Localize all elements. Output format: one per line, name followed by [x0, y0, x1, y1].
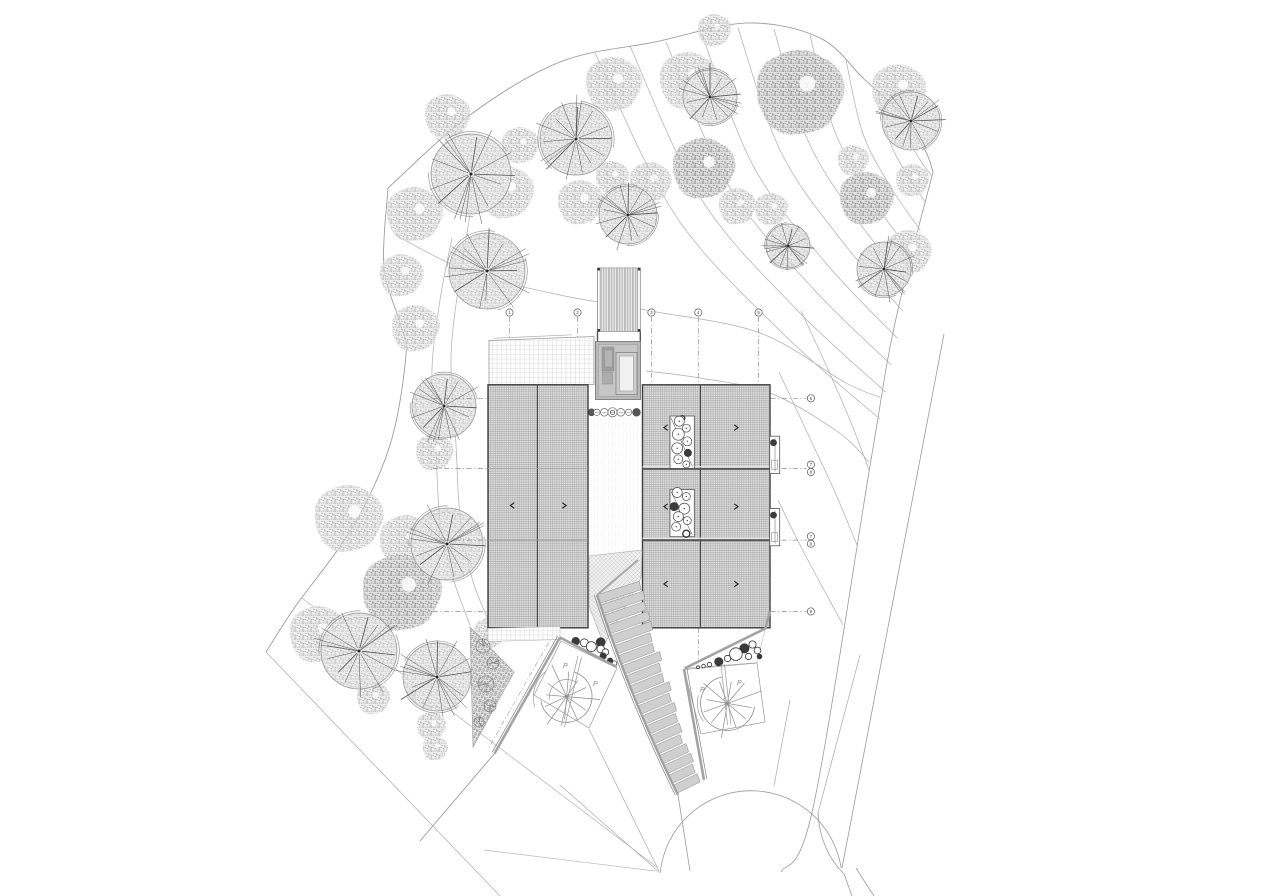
- svg-text:P: P: [737, 680, 742, 687]
- svg-text:P: P: [700, 687, 705, 694]
- svg-text:P: P: [563, 663, 568, 670]
- svg-text:P: P: [593, 681, 598, 688]
